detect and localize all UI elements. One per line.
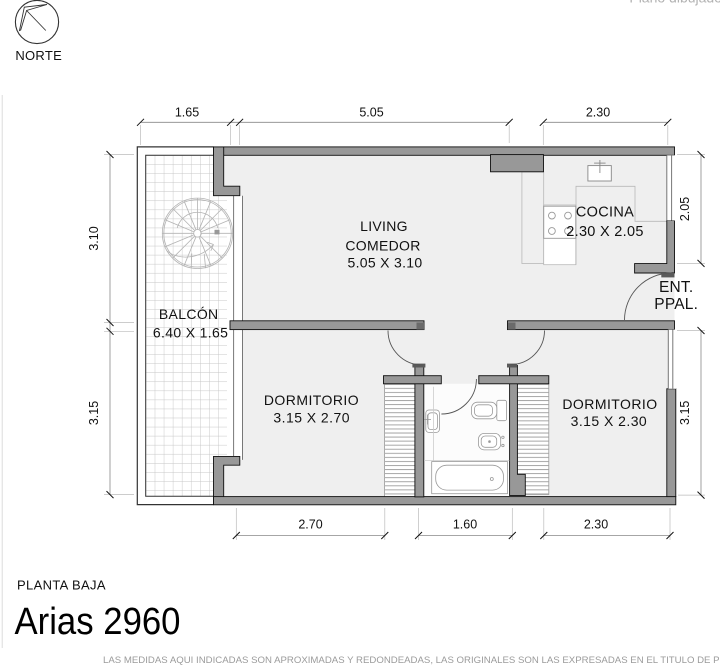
svg-text:1.60: 1.60 <box>453 518 477 532</box>
svg-text:2.05: 2.05 <box>678 197 692 221</box>
svg-text:COCINA: COCINA <box>576 205 634 221</box>
svg-text:COMEDOR: COMEDOR <box>345 238 420 254</box>
svg-text:2.30 X 2.05: 2.30 X 2.05 <box>566 224 643 240</box>
svg-text:3.15: 3.15 <box>678 401 692 425</box>
svg-text:Plano dibujado: Plano dibujado <box>629 0 720 6</box>
svg-text:Arias 2960: Arias 2960 <box>15 601 181 643</box>
svg-text:3.15: 3.15 <box>87 401 101 425</box>
svg-text:3.15 X 2.70: 3.15 X 2.70 <box>273 409 350 425</box>
svg-text:1.65: 1.65 <box>175 106 199 120</box>
svg-text:LIVING: LIVING <box>360 218 408 234</box>
svg-text:5.05: 5.05 <box>359 106 383 120</box>
svg-text:LAS MEDIDAS AQUI INDICADAS SON: LAS MEDIDAS AQUI INDICADAS SON APROXIMAD… <box>103 655 720 665</box>
svg-text:2.30: 2.30 <box>586 106 610 120</box>
svg-text:2.30: 2.30 <box>584 518 608 532</box>
svg-text:DORMITORIO: DORMITORIO <box>562 396 657 412</box>
svg-text:BALCÓN: BALCÓN <box>159 306 219 322</box>
svg-text:PLANTA BAJA: PLANTA BAJA <box>17 578 106 593</box>
svg-text:PPAL.: PPAL. <box>654 296 698 313</box>
svg-text:ENT.: ENT. <box>659 279 693 296</box>
svg-text:6.40 X 1.65: 6.40 X 1.65 <box>153 324 228 340</box>
svg-text:2.70: 2.70 <box>298 518 322 532</box>
svg-text:NORTE: NORTE <box>15 48 62 63</box>
svg-text:3.15 X 2.30: 3.15 X 2.30 <box>571 413 648 429</box>
svg-text:5.05 X 3.10: 5.05 X 3.10 <box>348 254 423 270</box>
svg-text:3.10: 3.10 <box>87 226 101 250</box>
svg-text:DORMITORIO: DORMITORIO <box>264 392 359 408</box>
